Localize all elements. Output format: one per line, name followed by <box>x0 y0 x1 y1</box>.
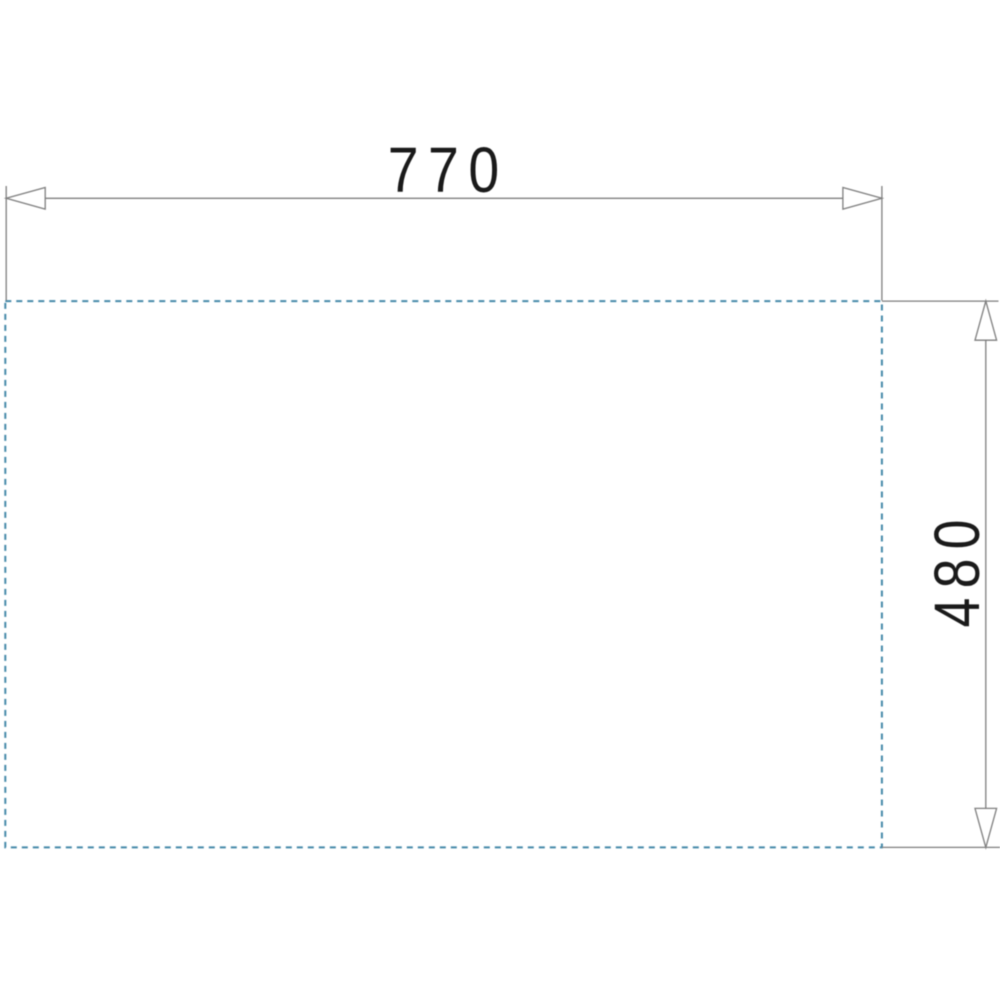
svg-text:770: 770 <box>388 134 509 206</box>
svg-text:480: 480 <box>922 510 993 627</box>
